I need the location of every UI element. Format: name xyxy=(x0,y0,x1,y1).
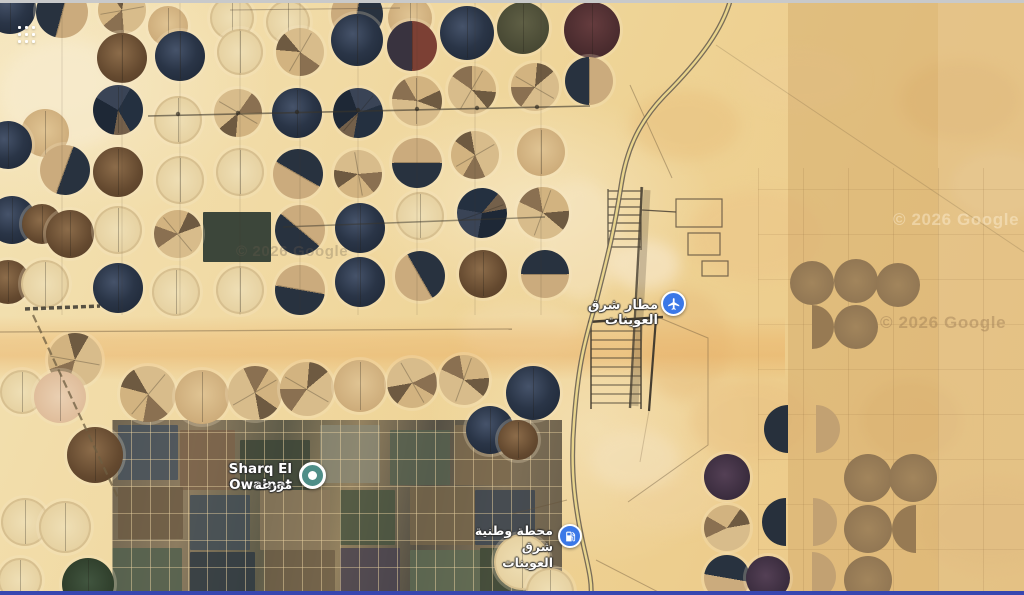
crop-circle xyxy=(392,76,442,126)
crop-circle xyxy=(502,54,568,120)
sand-blotch xyxy=(590,430,680,490)
marker-tail xyxy=(566,543,576,553)
crop-circle xyxy=(154,96,202,144)
crop-circle xyxy=(94,0,150,38)
crop-circle xyxy=(331,14,383,66)
crop-circle xyxy=(22,204,62,244)
fuel-pump-icon xyxy=(564,530,577,543)
crop-circle xyxy=(696,497,759,560)
sand-blotch xyxy=(620,470,720,530)
airplane-icon xyxy=(667,297,681,311)
airport-poi-marker[interactable] xyxy=(661,291,686,316)
crop-circle xyxy=(450,181,514,245)
crop-circle xyxy=(565,57,613,105)
satellite-map-canvas[interactable]: © 2026 Google © 2026 Google © 2026 Googl… xyxy=(0,0,1024,595)
apps-grid-icon[interactable] xyxy=(16,24,37,45)
crop-circle xyxy=(327,0,387,44)
crop-circle xyxy=(97,33,147,83)
crop-circle xyxy=(1,498,49,546)
google-attribution-watermark: © 2026 Google xyxy=(880,313,1006,333)
sand-blotch xyxy=(540,180,620,300)
crop-circle xyxy=(267,19,333,85)
crop-circle xyxy=(510,180,577,247)
crop-circle xyxy=(396,192,444,240)
crop-circle xyxy=(152,268,200,316)
crop-circle xyxy=(264,140,332,208)
crop-circle xyxy=(0,558,42,595)
bottom-taskbar-edge xyxy=(0,591,1024,595)
crop-circle xyxy=(335,257,385,307)
crop-circle xyxy=(30,0,94,44)
survey-grid-lines xyxy=(758,168,1024,595)
crop-circle xyxy=(156,156,204,204)
poi-label-station-arabic[interactable]: محطة وطنية شرق العوينات xyxy=(468,523,553,571)
crop-circle xyxy=(323,78,393,148)
crop-circle xyxy=(392,138,442,188)
crop-circle xyxy=(387,21,437,71)
marker-center-dot xyxy=(308,471,317,480)
crop-circle xyxy=(564,2,620,58)
crop-circle xyxy=(497,2,549,54)
crop-circle xyxy=(21,109,69,157)
crop-circle xyxy=(388,0,432,40)
sand-blotch xyxy=(630,90,740,160)
crop-circle xyxy=(0,260,30,304)
crop-circle xyxy=(93,263,143,313)
sand-blotch xyxy=(610,240,680,290)
crop-circle xyxy=(266,0,310,44)
crop-circle xyxy=(459,250,507,298)
station-label-line1: محطة وطنية xyxy=(468,523,553,539)
crop-circle xyxy=(94,206,142,254)
top-window-edge xyxy=(0,0,1024,3)
crop-circle xyxy=(521,250,569,298)
crop-circle xyxy=(210,0,254,40)
google-attribution-watermark: © 2026 Google xyxy=(893,210,1019,230)
crop-circle xyxy=(39,501,91,553)
google-attribution-watermark: © 2026 Google xyxy=(236,243,348,260)
crop-circle xyxy=(93,147,143,197)
crop-circle xyxy=(148,6,188,46)
crop-circle xyxy=(0,121,32,169)
crop-circle xyxy=(700,551,753,595)
crop-circle xyxy=(93,85,143,135)
crop-circle xyxy=(155,31,205,81)
crop-circle xyxy=(217,29,263,75)
sand-blotch xyxy=(0,40,130,150)
poi-sublabel-farm-arabic[interactable]: مزرعة xyxy=(192,478,292,492)
crop-circle xyxy=(439,57,505,123)
crop-circle xyxy=(62,558,114,595)
crop-circle xyxy=(46,210,94,258)
crop-circle xyxy=(330,146,386,202)
crop-circle xyxy=(386,242,454,310)
crop-circle xyxy=(440,6,494,60)
crop-circle xyxy=(144,200,212,268)
crop-circle xyxy=(216,148,264,196)
farm-poi-marker[interactable] xyxy=(299,462,326,489)
fuel-station-poi-marker[interactable] xyxy=(558,524,582,548)
crop-circle xyxy=(33,138,97,202)
crop-circle xyxy=(271,261,329,319)
crop-circle xyxy=(704,454,750,500)
orange-sand-band xyxy=(0,316,785,380)
station-label-line2: شرق العوينات xyxy=(468,539,553,571)
crop-circle xyxy=(442,122,508,188)
poi-label-airport-arabic[interactable]: مطار شرق العوينات xyxy=(556,298,658,328)
crop-circle xyxy=(272,88,322,138)
crop-circle xyxy=(216,266,264,314)
crop-circle xyxy=(205,80,271,146)
crop-circle xyxy=(21,260,69,308)
crop-circle xyxy=(0,196,36,244)
crop-circle xyxy=(517,128,565,176)
